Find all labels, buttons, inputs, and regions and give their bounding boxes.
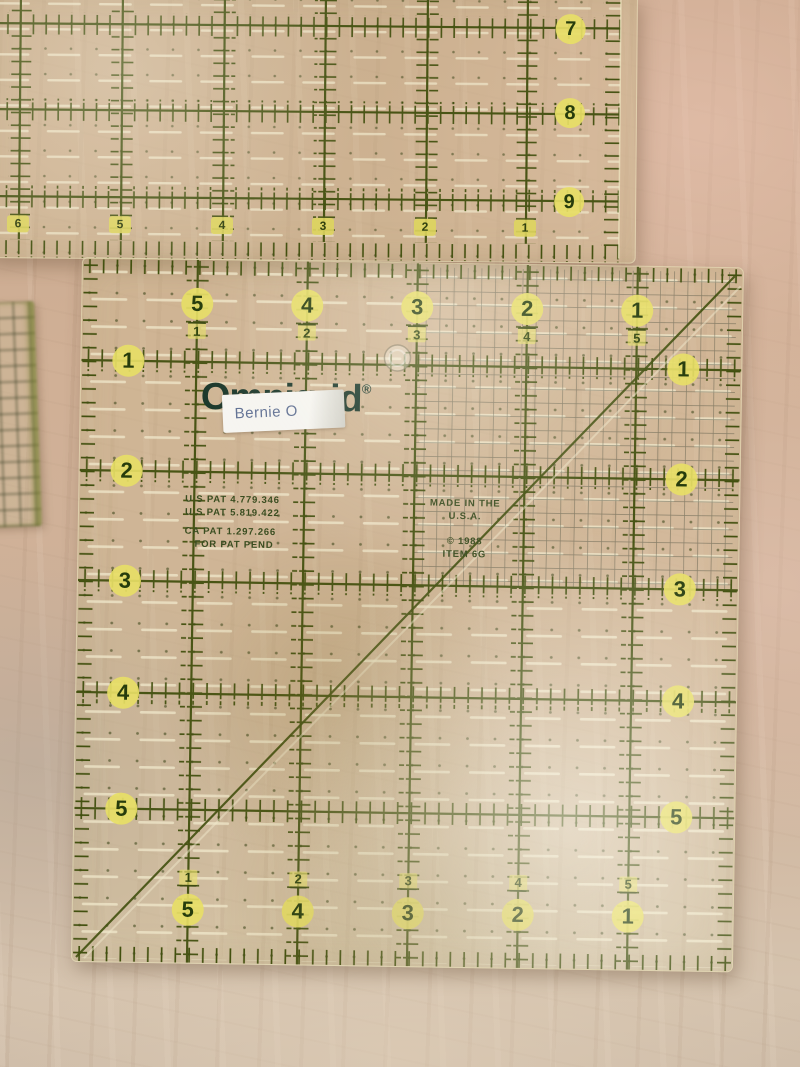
ruler-number: 3 bbox=[408, 325, 426, 342]
ruler-number: 6 bbox=[7, 215, 29, 232]
ruler-number: 2 bbox=[289, 871, 307, 888]
item-number-line: ITEM 6G bbox=[418, 547, 510, 561]
ruler-number: 2 bbox=[414, 219, 436, 236]
sticker-text: Bernie O bbox=[222, 402, 298, 422]
main-ruler-markings bbox=[72, 258, 743, 971]
ruler-number: 8 bbox=[555, 98, 585, 128]
patent-text-block: U.S PAT 4.779.346 U.S PAT 5.819.422 CA P… bbox=[184, 493, 279, 552]
patent-line: FOR PAT PEND bbox=[194, 538, 279, 552]
photo-of-quilting-rulers: { "scene": { "setting": "wooden table", … bbox=[0, 0, 800, 1067]
ruler-number: 3 bbox=[312, 218, 334, 235]
ruler-number: 1 bbox=[188, 322, 206, 339]
made-in-line: MADE IN THE bbox=[419, 496, 511, 510]
made-in-text-block: MADE IN THE U.S.A. © 1988 ITEM 6G bbox=[418, 496, 511, 561]
ruler-number: 5 bbox=[619, 877, 637, 894]
ruler-number: 7 bbox=[556, 14, 586, 44]
hang-hole bbox=[384, 345, 410, 371]
ruler-number: 1 bbox=[179, 870, 197, 887]
main-ruler: 5 4 3 2 1 1 2 3 4 5 1 2 3 4 5 1 2 3 4 5 … bbox=[71, 257, 744, 972]
ruler-number: 4 bbox=[518, 327, 536, 344]
registered-trademark-symbol: ® bbox=[362, 381, 372, 396]
top-ruler: 7 8 9 6 5 4 3 2 1 bbox=[0, 0, 638, 264]
ruler-number: 1 bbox=[514, 220, 536, 237]
ruler-number: 2 bbox=[298, 323, 316, 340]
ruler-number: 5 bbox=[109, 216, 131, 233]
ruler-number: 3 bbox=[399, 873, 417, 890]
ruler-number: 9 bbox=[554, 187, 584, 217]
ruler-number: 4 bbox=[211, 217, 233, 234]
patent-line: U.S PAT 5.819.422 bbox=[185, 506, 280, 520]
ruler-number: 5 bbox=[628, 329, 646, 346]
name-sticker: Bernie O bbox=[222, 389, 346, 432]
ruler-number: 4 bbox=[509, 875, 527, 892]
made-in-line: U.S.A. bbox=[419, 509, 511, 523]
